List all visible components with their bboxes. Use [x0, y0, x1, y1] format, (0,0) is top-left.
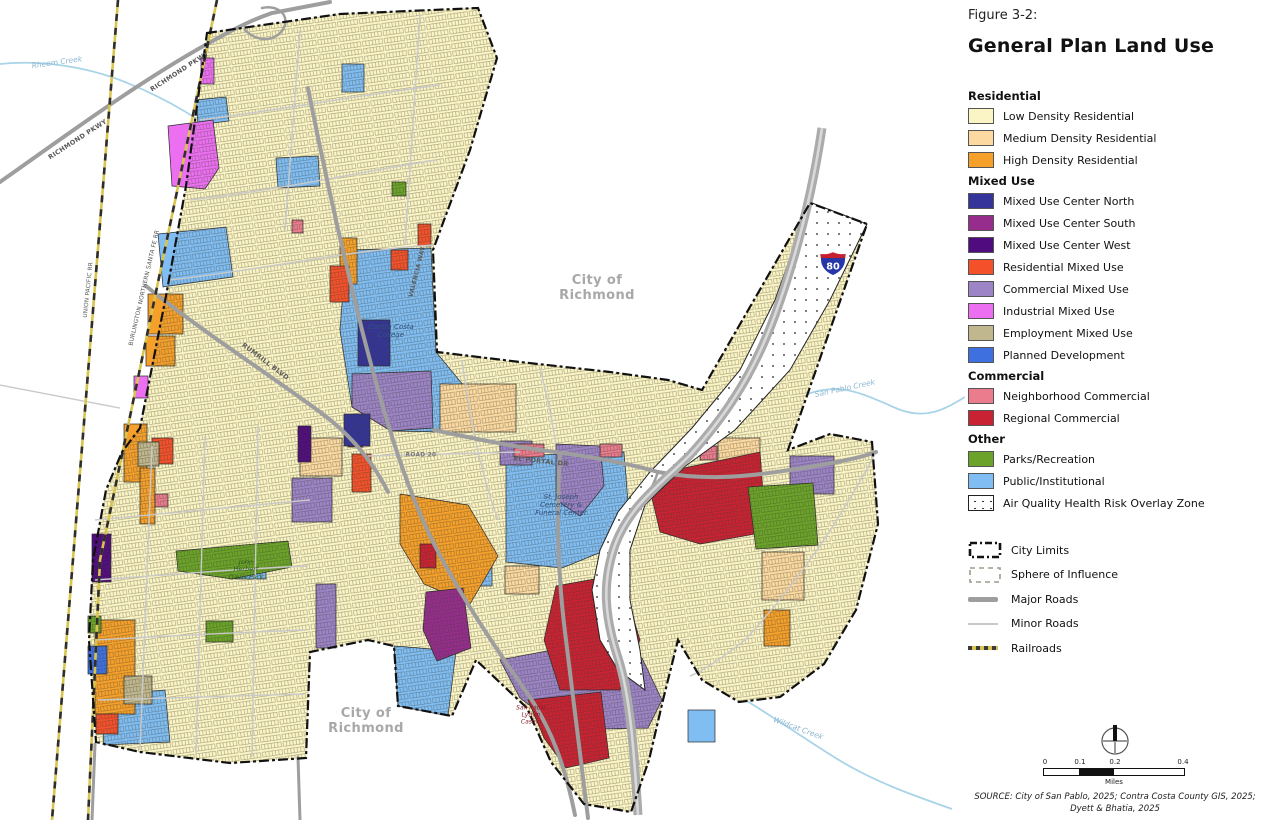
legend-item-mu-center-west: Mixed Use Center West	[968, 234, 1268, 256]
scale-tick: 0.4	[1177, 758, 1188, 766]
legend-label: Mixed Use Center South	[1003, 217, 1136, 230]
legend-section-mixed-use: Mixed Use	[968, 174, 1268, 188]
legend-label: Medium Density Residential	[1003, 132, 1156, 145]
legend-label: Major Roads	[1011, 593, 1078, 606]
legend-swatch-air-quality-overlay	[968, 495, 994, 511]
railroads-symbol	[968, 646, 1002, 650]
source-citation: SOURCE: City of San Pablo, 2025; Contra …	[962, 791, 1268, 816]
legend-panel: Figure 3-2: General Plan Land Use Reside…	[968, 8, 1268, 661]
scale-bar-outline	[1043, 768, 1185, 776]
legend-label: Sphere of Influence	[1011, 568, 1118, 581]
figure-page: City of Richmond City of Richmond Rheem …	[0, 0, 1269, 820]
legend-label: Parks/Recreation	[1003, 453, 1095, 466]
legend-label: Residential Mixed Use	[1003, 261, 1124, 274]
legend-swatch-commercial-mu	[968, 281, 994, 297]
land-use-map: City of Richmond City of Richmond Rheem …	[0, 0, 965, 820]
legend-label: Regional Commercial	[1003, 412, 1120, 425]
legend-section-residential: Residential	[968, 89, 1268, 103]
legend-label: Mixed Use Center North	[1003, 195, 1134, 208]
legend-item-sphere-of-influence: Sphere of Influence	[968, 563, 1268, 588]
legend-swatch-industrial-mu	[968, 303, 994, 319]
legend-item-employment-mu: Employment Mixed Use	[968, 322, 1268, 344]
legend-item-city-limits: City Limits	[968, 538, 1268, 563]
north-arrow-icon	[1096, 722, 1134, 762]
sphere-of-influence-symbol	[968, 566, 1002, 584]
legend-item-high-density: High Density Residential	[968, 149, 1268, 171]
legend-swatch-medium-density	[968, 130, 994, 146]
legend-label: High Density Residential	[1003, 154, 1138, 167]
legend-item-air-quality-overlay: Air Quality Health Risk Overlay Zone	[968, 492, 1268, 514]
legend-swatch-parks	[968, 451, 994, 467]
legend-label: Air Quality Health Risk Overlay Zone	[1003, 497, 1205, 510]
legend-item-mu-center-north: Mixed Use Center North	[968, 190, 1268, 212]
legend-label: Public/Institutional	[1003, 475, 1105, 488]
legend-item-railroads: Railroads	[968, 636, 1268, 661]
legend-section-other: Other	[968, 432, 1268, 446]
figure-number: Figure 3-2:	[968, 8, 1268, 23]
legend-swatch-neighborhood-commercial	[968, 388, 994, 404]
legend-section-commercial: Commercial	[968, 369, 1268, 383]
legend-item-low-density: Low Density Residential	[968, 105, 1268, 127]
legend-swatch-employment-mu	[968, 325, 994, 341]
legend-swatch-public	[968, 473, 994, 489]
legend-swatch-high-density	[968, 152, 994, 168]
legend-label: Neighborhood Commercial	[1003, 390, 1150, 403]
scale-bar-fill	[1079, 769, 1114, 775]
major-roads-symbol	[968, 597, 1002, 602]
legend-swatch-low-density	[968, 108, 994, 124]
scale-tick: 0.1	[1074, 758, 1085, 766]
legend-item-parks-recreation: Parks/Recreation	[968, 448, 1268, 470]
scale-tick: 0	[1043, 758, 1047, 766]
legend-item-public-institutional: Public/Institutional	[968, 470, 1268, 492]
legend-item-minor-roads: Minor Roads	[968, 612, 1268, 637]
scale-bar: 0 0.1 0.2 0.4 Miles	[1043, 758, 1185, 788]
legend-label: City Limits	[1011, 544, 1069, 557]
legend-item-industrial-mu: Industrial Mixed Use	[968, 300, 1268, 322]
legend-item-major-roads: Major Roads	[968, 587, 1268, 612]
legend-swatch-residential-mu	[968, 259, 994, 275]
legend-swatch-mu-center-west	[968, 237, 994, 253]
legend-label: Minor Roads	[1011, 617, 1079, 630]
legend-line-items: City Limits Sphere of Influence Major Ro…	[968, 538, 1268, 661]
scale-unit-label: Miles	[1043, 778, 1185, 786]
legend-swatch-mu-center-north	[968, 193, 994, 209]
legend-label: Employment Mixed Use	[1003, 327, 1133, 340]
scale-tick: 0.2	[1109, 758, 1120, 766]
legend-label: Planned Development	[1003, 349, 1125, 362]
legend-item-neighborhood-commercial: Neighborhood Commercial	[968, 385, 1268, 407]
minor-roads-symbol	[968, 623, 1002, 626]
legend-item-planned-development: Planned Development	[968, 344, 1268, 366]
map-canvas	[0, 0, 965, 820]
legend-item-regional-commercial: Regional Commercial	[968, 407, 1268, 429]
legend-swatch-mu-center-south	[968, 215, 994, 231]
figure-title: General Plan Land Use	[968, 35, 1268, 57]
legend-label: Industrial Mixed Use	[1003, 305, 1115, 318]
city-limits-symbol	[968, 541, 1002, 559]
legend-item-residential-mu: Residential Mixed Use	[968, 256, 1268, 278]
legend-label: Mixed Use Center West	[1003, 239, 1131, 252]
legend-label: Low Density Residential	[1003, 110, 1134, 123]
legend-swatch-regional-commercial	[968, 410, 994, 426]
legend-item-medium-density: Medium Density Residential	[968, 127, 1268, 149]
legend-swatch-planned-development	[968, 347, 994, 363]
legend-item-commercial-mu: Commercial Mixed Use	[968, 278, 1268, 300]
legend-label: Commercial Mixed Use	[1003, 283, 1129, 296]
legend-label: Railroads	[1011, 642, 1062, 655]
legend-item-mu-center-south: Mixed Use Center South	[968, 212, 1268, 234]
